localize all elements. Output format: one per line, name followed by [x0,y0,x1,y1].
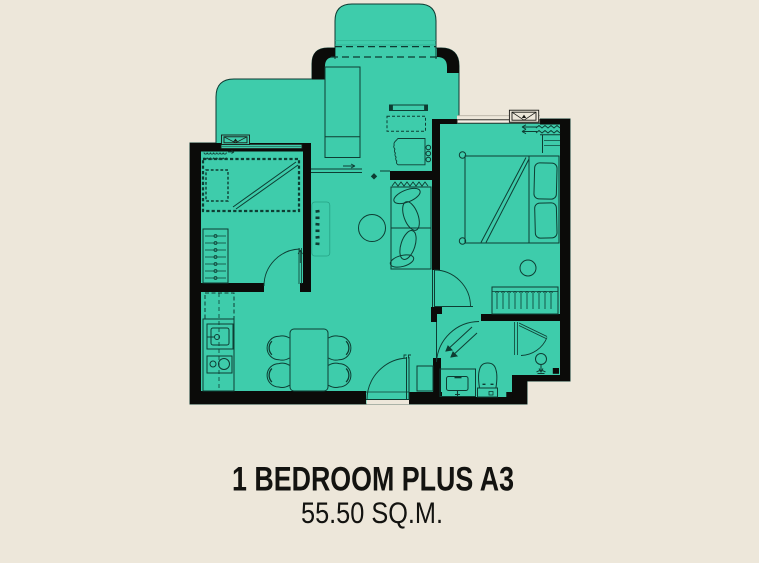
svg-text:55.50 SQ.M.: 55.50 SQ.M. [301,497,443,530]
svg-text:1 BEDROOM PLUS A3: 1 BEDROOM PLUS A3 [232,461,514,499]
